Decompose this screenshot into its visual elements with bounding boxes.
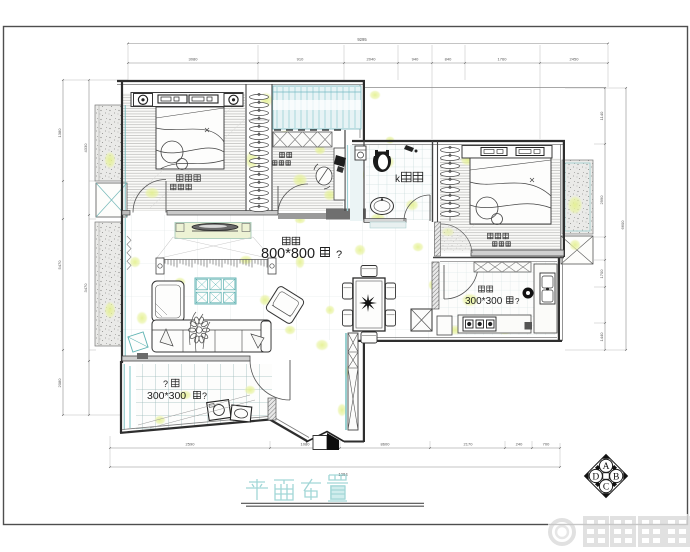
svg-text:1380: 1380 bbox=[57, 128, 62, 138]
svg-text:940: 940 bbox=[412, 57, 419, 62]
svg-text:2450: 2450 bbox=[570, 57, 580, 62]
svg-text:B: B bbox=[613, 472, 619, 482]
svg-text:4330: 4330 bbox=[83, 143, 88, 153]
svg-text:700: 700 bbox=[543, 442, 550, 447]
svg-text:2040: 2040 bbox=[367, 57, 377, 62]
svg-text:1440: 1440 bbox=[599, 332, 604, 342]
svg-text:800*800: 800*800 bbox=[261, 246, 315, 262]
svg-text:?: ? bbox=[202, 391, 207, 401]
svg-text:D: D bbox=[592, 472, 599, 482]
svg-text:840: 840 bbox=[445, 57, 452, 62]
svg-text:?: ? bbox=[336, 249, 342, 261]
svg-text:8600: 8600 bbox=[381, 442, 391, 447]
svg-text:1700: 1700 bbox=[599, 269, 604, 279]
svg-text:3080: 3080 bbox=[189, 57, 199, 62]
svg-text:2080: 2080 bbox=[57, 378, 62, 388]
svg-text:5470: 5470 bbox=[57, 260, 62, 270]
svg-text:3470: 3470 bbox=[83, 283, 88, 293]
svg-text:A: A bbox=[603, 462, 610, 472]
svg-text:2170: 2170 bbox=[464, 442, 474, 447]
svg-text:1760: 1760 bbox=[498, 57, 508, 62]
svg-text:?: ? bbox=[515, 297, 520, 306]
svg-text:300*300: 300*300 bbox=[465, 296, 503, 307]
svg-text:?: ? bbox=[163, 379, 168, 389]
svg-text:300*300: 300*300 bbox=[147, 390, 186, 402]
svg-text:2590: 2590 bbox=[186, 442, 196, 447]
svg-text:240: 240 bbox=[516, 442, 523, 447]
svg-text:9295: 9295 bbox=[357, 37, 367, 42]
svg-text:2990: 2990 bbox=[599, 195, 604, 205]
svg-text:1140: 1140 bbox=[599, 111, 604, 120]
svg-text:C: C bbox=[603, 483, 609, 493]
svg-text:1080: 1080 bbox=[301, 442, 311, 447]
svg-text:6600: 6600 bbox=[620, 220, 625, 230]
svg-text:910: 910 bbox=[297, 57, 304, 62]
